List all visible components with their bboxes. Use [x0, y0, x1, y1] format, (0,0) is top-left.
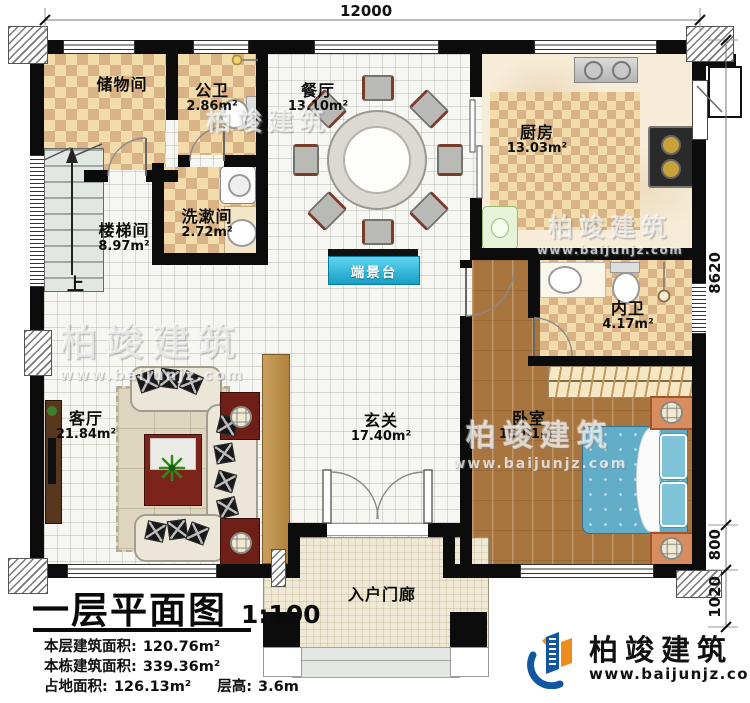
window [30, 155, 44, 287]
window [692, 283, 706, 334]
room-label-public-bath: 公卫 2.86m² [186, 82, 237, 115]
brand-logo-icon [526, 629, 580, 689]
entry-door-opening [327, 523, 428, 536]
sofa-pillow [159, 368, 180, 389]
exterior-cabinet [708, 66, 742, 118]
room-label-porch: 入户门廊 [348, 586, 416, 604]
wall [84, 170, 108, 182]
wall [692, 332, 706, 578]
stove-burner [661, 135, 681, 155]
bed-sheet [636, 428, 660, 532]
wall [288, 523, 327, 537]
dimension-top: 12000 [340, 2, 392, 20]
room-label-stairwell: 楼梯间 8.97m² [98, 222, 149, 255]
room-label-storage: 储物间 [96, 76, 147, 94]
wall [692, 138, 706, 283]
area-stats: 本层建筑面积:120.76m² 本栋建筑面积:339.36m² 占地面积:126… [44, 637, 299, 697]
column-base [450, 647, 489, 677]
wall [256, 54, 268, 253]
window [67, 564, 217, 578]
window [520, 564, 654, 578]
brand-name: 柏竣建筑 [589, 635, 750, 665]
hatch-pier [24, 330, 52, 376]
wall [470, 198, 482, 248]
wall [152, 163, 164, 253]
window [534, 40, 657, 54]
dimension-right-lower: 1020 [706, 576, 724, 618]
pillow [660, 482, 687, 527]
room-label-dining: 餐厅 13.10m² [288, 82, 348, 115]
brand-website: www.baijunjz.com [589, 665, 750, 683]
side-door-opening [692, 80, 708, 140]
console-table: 端景台 [328, 256, 420, 285]
sofa-pillow [213, 442, 235, 464]
title-underline [33, 628, 251, 632]
brand-text: 柏竣建筑 www.baijunjz.com [589, 635, 750, 683]
hood-vent [584, 61, 603, 80]
stat-footprint-height: 占地面积:126.13m² 层高:3.6m [44, 677, 299, 697]
wall [178, 155, 190, 167]
plan-scale: 1:100 [241, 600, 321, 629]
hood-vent [612, 61, 631, 80]
washbasin [548, 266, 582, 294]
window [314, 40, 439, 54]
room-label-kitchen: 厨房 13.03m² [507, 124, 567, 157]
wall [455, 564, 520, 578]
table-lamp [230, 532, 252, 554]
stove-burner [661, 159, 681, 179]
wall [528, 356, 692, 366]
wall [460, 260, 472, 268]
plan-title: 一层平面图 [32, 580, 227, 634]
console-top-edge [328, 249, 418, 256]
stat-building-area: 本栋建筑面积:339.36m² [44, 657, 299, 677]
hatch-corner [686, 26, 734, 62]
window [63, 40, 135, 54]
washer-drum [228, 174, 251, 197]
hatch-corner [8, 26, 48, 64]
wall [247, 40, 314, 54]
porch-step [292, 660, 460, 678]
wall [460, 316, 472, 564]
wall [133, 40, 193, 54]
dining-table-top [343, 126, 411, 194]
sofa-pillow [144, 520, 167, 543]
dining-chair [362, 219, 394, 245]
window [193, 40, 249, 54]
dimension-right-upper: 8620 [706, 252, 724, 294]
porch-column [450, 612, 487, 647]
wall [224, 155, 256, 167]
plan-title-row: 一层平面图 1:100 [32, 580, 321, 634]
floor-plan-canvas: 端景台 [0, 0, 750, 703]
wall [470, 248, 692, 260]
dining-chair [362, 75, 394, 101]
dimension-right-middle: 800 [706, 529, 724, 560]
stairs-up-label: 上 [67, 276, 85, 296]
tv-screen [48, 438, 56, 484]
room-label-washroom: 洗漱间 2.72m² [181, 208, 232, 241]
room-label-ensuite: 内卫 4.17m² [602, 300, 653, 333]
dining-chair [437, 144, 463, 176]
pillow [660, 434, 687, 479]
wall [288, 537, 300, 578]
stat-floor-area: 本层建筑面积:120.76m² [44, 637, 299, 657]
coffee-table-runner [150, 438, 196, 470]
dining-chair [293, 144, 319, 176]
wardrobe [548, 366, 694, 398]
wall [528, 260, 540, 318]
console-label: 端景台 [351, 261, 398, 281]
room-label-living: 客厅 21.84m² [56, 410, 116, 443]
room-label-foyer: 玄关 17.40m² [351, 412, 411, 445]
wall [152, 253, 268, 265]
nightstand-lamp [660, 537, 683, 560]
table-lamp [230, 406, 252, 428]
wall [437, 40, 534, 54]
hall-cabinet [262, 354, 290, 564]
room-label-bedroom: 卧室 15.01m² [499, 410, 559, 443]
wall [470, 54, 482, 97]
wall [443, 537, 455, 578]
kitchen-sink-basin [491, 218, 509, 238]
wall [30, 285, 44, 578]
wall [166, 54, 178, 120]
brand-logo: 柏竣建筑 www.baijunjz.com [526, 629, 750, 689]
nightstand-lamp [660, 401, 683, 424]
